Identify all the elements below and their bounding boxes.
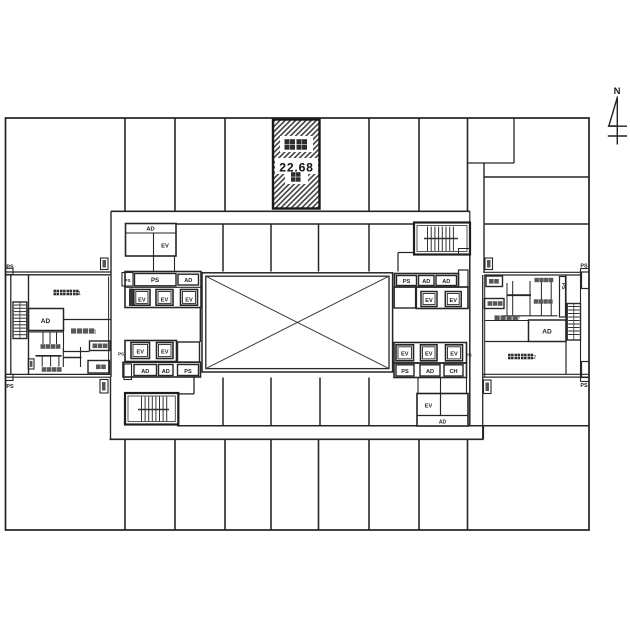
svg-text:AD: AD bbox=[184, 278, 192, 284]
svg-text:PS: PS bbox=[466, 353, 472, 358]
svg-text:EV: EV bbox=[161, 298, 169, 304]
svg-text:2: 2 bbox=[533, 355, 536, 361]
svg-text:EV: EV bbox=[425, 298, 433, 304]
svg-text:EV: EV bbox=[138, 298, 146, 304]
svg-text:AD: AD bbox=[141, 369, 149, 375]
svg-text:EV: EV bbox=[425, 352, 433, 358]
svg-text:PS: PS bbox=[401, 369, 409, 375]
svg-text:AD: AD bbox=[41, 318, 51, 325]
svg-text:AD: AD bbox=[442, 279, 450, 285]
svg-text:CH: CH bbox=[449, 369, 457, 375]
svg-text:PS: PS bbox=[580, 383, 588, 389]
svg-text:1: 1 bbox=[94, 330, 97, 336]
svg-text:PS: PS bbox=[184, 369, 192, 375]
svg-text:EV: EV bbox=[161, 244, 169, 250]
svg-text:AD: AD bbox=[426, 369, 434, 375]
svg-text:AD: AD bbox=[146, 227, 154, 233]
svg-text:AD: AD bbox=[422, 279, 430, 285]
svg-text:PS: PS bbox=[118, 352, 124, 357]
svg-text:1: 1 bbox=[78, 291, 81, 297]
svg-text:EV: EV bbox=[425, 404, 433, 410]
svg-text:PS: PS bbox=[560, 283, 566, 290]
svg-text:EV: EV bbox=[401, 352, 409, 358]
svg-text:PS: PS bbox=[124, 278, 130, 283]
svg-text:2: 2 bbox=[517, 317, 520, 323]
svg-text:AD: AD bbox=[439, 419, 447, 425]
svg-text:EV: EV bbox=[450, 352, 458, 358]
svg-text:AD: AD bbox=[542, 329, 552, 336]
svg-text:EV: EV bbox=[185, 298, 193, 304]
svg-text:PS: PS bbox=[403, 279, 411, 285]
svg-text:PS: PS bbox=[580, 264, 588, 270]
svg-text:EV: EV bbox=[137, 350, 145, 356]
svg-text:N: N bbox=[614, 86, 621, 97]
svg-text:PS: PS bbox=[6, 384, 14, 390]
svg-text:PS: PS bbox=[151, 278, 159, 284]
svg-text:AD: AD bbox=[162, 369, 170, 375]
svg-text:EV: EV bbox=[450, 298, 458, 304]
svg-text:PS: PS bbox=[6, 265, 14, 271]
svg-text:EV: EV bbox=[161, 350, 169, 356]
